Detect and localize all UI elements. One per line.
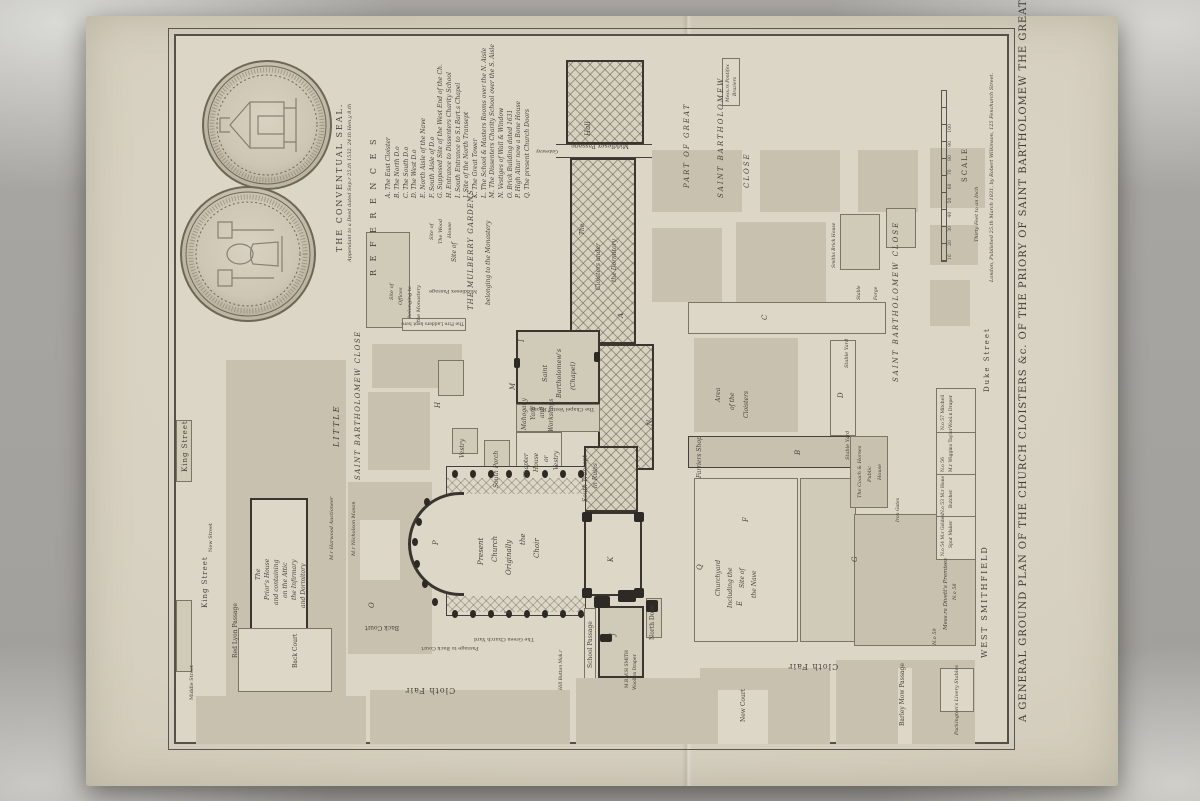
reference-item: Q. The present Church Doors (525, 109, 531, 198)
chapel-label: Saint (542, 365, 549, 382)
plan-letter-n: N (647, 420, 654, 426)
building-block (176, 600, 192, 672)
reference-item: L. The School & Masters Rooms over the N… (482, 48, 488, 198)
area-saint-bartholomew: SAINT BARTHOLOMEW (718, 77, 725, 198)
vestry-label: Vestry (460, 439, 466, 458)
coach-horses-label: Public (868, 466, 873, 482)
plan-letter-b: B (795, 450, 802, 455)
street-barley-mow: Barley Mow Passage (900, 663, 906, 726)
present-church-label: Originally (506, 540, 513, 575)
mahogany-label: Mahogany (522, 398, 528, 430)
building-block (858, 150, 918, 212)
street-west-smithfield: WEST SMITHFIELD (981, 545, 989, 658)
building-block (438, 360, 464, 396)
farriers-label: Farriers Shop (697, 436, 703, 478)
reference-item: I. South Entrance to S.t Bart.s Chapel (456, 83, 462, 198)
street-back-court-2: Back Court (352, 624, 412, 630)
school-passage: School Passage (588, 621, 594, 668)
wood-house-label: Site of (430, 224, 435, 240)
plan-letter-p: P (433, 540, 440, 545)
conventual-seal-reverse (178, 184, 318, 324)
priors-house-label: on the Attic (283, 563, 289, 598)
divett-label: N.o 59 (933, 628, 938, 645)
coach-horses-label: House (878, 464, 883, 480)
south-aisle-vault (446, 478, 586, 494)
south-transept-label: South Transept (583, 455, 589, 502)
building-block (930, 280, 970, 326)
priors-house-label: Prior's House (265, 559, 271, 600)
stable-yard-label: Stable Yard (846, 431, 851, 460)
area-part-of-great: PART OF GREAT (684, 103, 691, 188)
south-porch-label: South Porch (494, 451, 500, 488)
churchyard-label: Site of (740, 568, 746, 588)
plan-letter-k: K (608, 557, 615, 562)
mulberry-label: Site of (452, 242, 458, 262)
south-aisle-site (800, 478, 856, 642)
hall-building (566, 60, 644, 144)
shop-label: Spur Maker (950, 521, 955, 548)
street-back-court-1: Back Court (293, 634, 299, 668)
street-middle: Middle Street (190, 665, 195, 700)
nicholson-label: M.r Nicholson Mason (352, 501, 357, 556)
offices-label: Offices (399, 287, 404, 305)
photo-background: A GENERAL GROUND PLAN OF THE CHURCH CLOI… (0, 0, 1200, 801)
plan-letter-i: I (519, 339, 526, 342)
reference-item: P. High Altar now a Bone House (516, 101, 522, 198)
chapter-house-label: Vestry (554, 451, 560, 470)
scale-ticks: 10 20 30 40 50 60 70 80 90 100 (949, 124, 954, 260)
smiths-brick-label: Smiths Brick House (833, 223, 838, 268)
shop-divider (936, 432, 976, 433)
street-middlesex-passage-1: Middlesex Passage (560, 142, 640, 148)
street-passage-back-court: Passage to Back Court (418, 645, 482, 650)
plan-letter-h: H (435, 402, 442, 408)
braziers-label: Mess.rs Pontifex (727, 64, 732, 102)
corridor-label: The (580, 224, 586, 235)
corridor-label: Cloisters under (596, 243, 602, 290)
plan-letter-o: O (369, 602, 376, 608)
plan-letter-g: G (852, 556, 859, 562)
offices-label: Site of (390, 284, 395, 300)
back-court-yard (238, 628, 332, 692)
building-block (652, 150, 742, 212)
chapter-house-label: House (534, 453, 540, 472)
green-churchyard: The Green Church Yard (466, 636, 542, 641)
reference-item: C. The South D.o (404, 147, 410, 198)
corridor-label: the Dormitory (612, 239, 618, 282)
plan-letter-l: L (505, 609, 512, 614)
priors-house-label: The (256, 569, 262, 580)
building-block (736, 222, 826, 302)
divett-label: Mess.rs Divett's Premises (944, 558, 950, 630)
plan-letter-e: E (737, 601, 744, 606)
present-church-label: the (520, 534, 527, 545)
churchyard-label: Including the (728, 567, 734, 608)
harwood-label: M.r Harwood Auctioneer (330, 497, 335, 560)
reference-item: F. South Aisle of D.o (430, 137, 436, 198)
references-heading: R E F E R E N C E S (370, 137, 378, 276)
braziers-label: Braziers (734, 77, 739, 96)
area-cloisters-label: Area (716, 388, 722, 402)
building-block (368, 392, 430, 470)
shop-label: N.o 53 M.r Hone (942, 476, 947, 514)
churchyard-label: the Nave (752, 570, 758, 598)
chapel-label: (Chapel) (570, 362, 577, 390)
building-block (226, 360, 346, 502)
street-new: New Street (209, 523, 214, 552)
wood-house-label: The Wood (439, 219, 444, 244)
mulberry-label: belonging to the Monastery (486, 221, 492, 305)
building-block (840, 214, 880, 270)
reference-item: O. Brick Building dated 1631 (508, 110, 514, 198)
west-cloister-walk (830, 340, 856, 436)
priors-house-label: and Dormitory (301, 564, 307, 608)
building-block (836, 660, 936, 744)
plan-letter-j: J (610, 633, 617, 636)
reference-item: D. The West D.o (412, 150, 418, 198)
plan-letter-m: M (510, 383, 517, 390)
chapter-house-label: Chapter (524, 453, 530, 478)
south-cloister-walk (688, 302, 886, 334)
shop-label: N.o 57 Mitchell (942, 395, 947, 430)
street-red-lyon: Red Lyon Passage (233, 603, 239, 658)
building-block (886, 208, 916, 248)
plan-letter-f: F (743, 517, 750, 522)
present-church-label: Present (478, 538, 485, 565)
packington-stables: Packington's Livery Stables (955, 665, 960, 735)
street-new-court: New Court (741, 689, 747, 722)
street-king-2: King Street (202, 556, 209, 608)
smith-shop-label: Woollen Draper (634, 654, 639, 690)
reference-item: H. Entrance to Dissenters Charity School (447, 72, 453, 198)
scale-note: Thirty Feet to an Inch (975, 187, 980, 242)
north-door: North Door (650, 605, 656, 640)
forge-label: Forge (875, 287, 880, 300)
great-tower (584, 512, 642, 596)
plan-letter-a: A (618, 313, 625, 318)
shop-label: Butcher (950, 490, 955, 508)
building-block (652, 228, 722, 302)
present-church-label: Choir (534, 538, 541, 558)
plan-letter-d: D (838, 392, 845, 398)
street-king-1: King Street (182, 420, 189, 472)
shop-label: M.r Wiggins Taylor (950, 428, 955, 472)
priors-house-label: and containing (274, 560, 280, 605)
stable-yard-label: Stable Yard (845, 339, 850, 368)
iron-gates-label: Iron Gates (897, 498, 902, 522)
area-st-barts-close-east: SAINT BARTHOLOMEW CLOSE (893, 221, 900, 382)
plate-title: A GENERAL GROUND PLAN OF THE CHURCH CLOI… (1019, 0, 1029, 722)
mahogany-label: Workshops (549, 399, 555, 432)
divett-label: N.o 58 (953, 583, 958, 600)
area-cloisters-label: Cloisters (744, 391, 750, 418)
seal-caption: THE CONVENTUAL SEAL. (336, 103, 344, 252)
gateway: Gateway (534, 148, 560, 153)
conventual-seal-obverse (200, 58, 334, 192)
court-yard (360, 520, 400, 580)
reference-item: A. The East Cloister (386, 137, 392, 198)
seal-subcaption: Appendant to a Deed dated Sep.r 25.th 15… (348, 104, 353, 262)
reference-item: G. Supposed Site of the West End of the … (438, 64, 444, 198)
present-church-label: Church (492, 536, 499, 562)
area-close: CLOSE (744, 152, 751, 188)
offices-label: belonging to (408, 286, 413, 318)
fire-ladders-label: The Fire Ladders kept here (404, 320, 464, 325)
imprint: London, Published 25.th March 1831, by R… (990, 73, 995, 282)
building-block (370, 690, 570, 744)
building-block (196, 696, 366, 744)
stable-label: Stable (858, 285, 863, 300)
south-transept-label: in Ruins (593, 463, 599, 488)
chapel-vestry-label: The Chapel Vestry Rooms (526, 406, 598, 411)
hill-shop-label: Hill Button Mak.r (560, 650, 565, 690)
reference-item: M. The Dissenters Charity School over th… (490, 44, 496, 198)
shop-label: N.o 54 M.r Golden (942, 514, 947, 556)
street-cloth-fair-1: Cloth Fair (398, 686, 462, 694)
chapel-label: Bartholomew's (556, 349, 563, 398)
churchyard-label: Churchyard (716, 560, 722, 596)
building-block (930, 225, 978, 265)
coach-horses-label: The Coach & Horses (858, 446, 863, 498)
wood-house-label: House (448, 222, 453, 238)
plan-letter-c: C (762, 315, 769, 320)
area-cloisters-label: of the (730, 392, 736, 410)
hall-label: Hall (585, 121, 592, 136)
plan-letter-q: Q (697, 564, 704, 570)
north-aisle-vault (446, 596, 586, 612)
shop-label: N.o 56 (942, 457, 947, 472)
street-duke: Duke Street (984, 327, 991, 392)
reference-item: N. Vestiges of Wall & Window (499, 108, 505, 198)
reference-item: B. The North D.o (395, 146, 401, 198)
street-cloth-fair-2: Cloth Fair (778, 662, 848, 670)
area-little: LITTLE (333, 405, 341, 447)
building-block (760, 150, 840, 212)
chapter-house-label: or (544, 456, 550, 462)
reference-item: E. North Aisle of the Nave (421, 118, 427, 198)
offices-label: the Monastery (417, 285, 422, 322)
shop-label: Wool.n Draper (950, 395, 955, 428)
smith-shop-label: M.R W.H SMITH (626, 650, 631, 688)
reference-item: J. Site of the North Transept (464, 112, 470, 198)
area-st-barts-close-west: SAINT BARTHOLOMEW CLOSE (355, 330, 362, 480)
priors-house-label: the Infirmary (292, 560, 298, 600)
scale-bar (941, 90, 947, 262)
east-cloister-corridor (570, 158, 636, 344)
scale-label: SCALE (962, 147, 969, 182)
mulberry-label: THE MULBERRY GARDENS (468, 189, 475, 310)
paper-sheet: A GENERAL GROUND PLAN OF THE CHURCH CLOI… (86, 16, 1118, 786)
churchyard-nave-site (694, 478, 798, 642)
